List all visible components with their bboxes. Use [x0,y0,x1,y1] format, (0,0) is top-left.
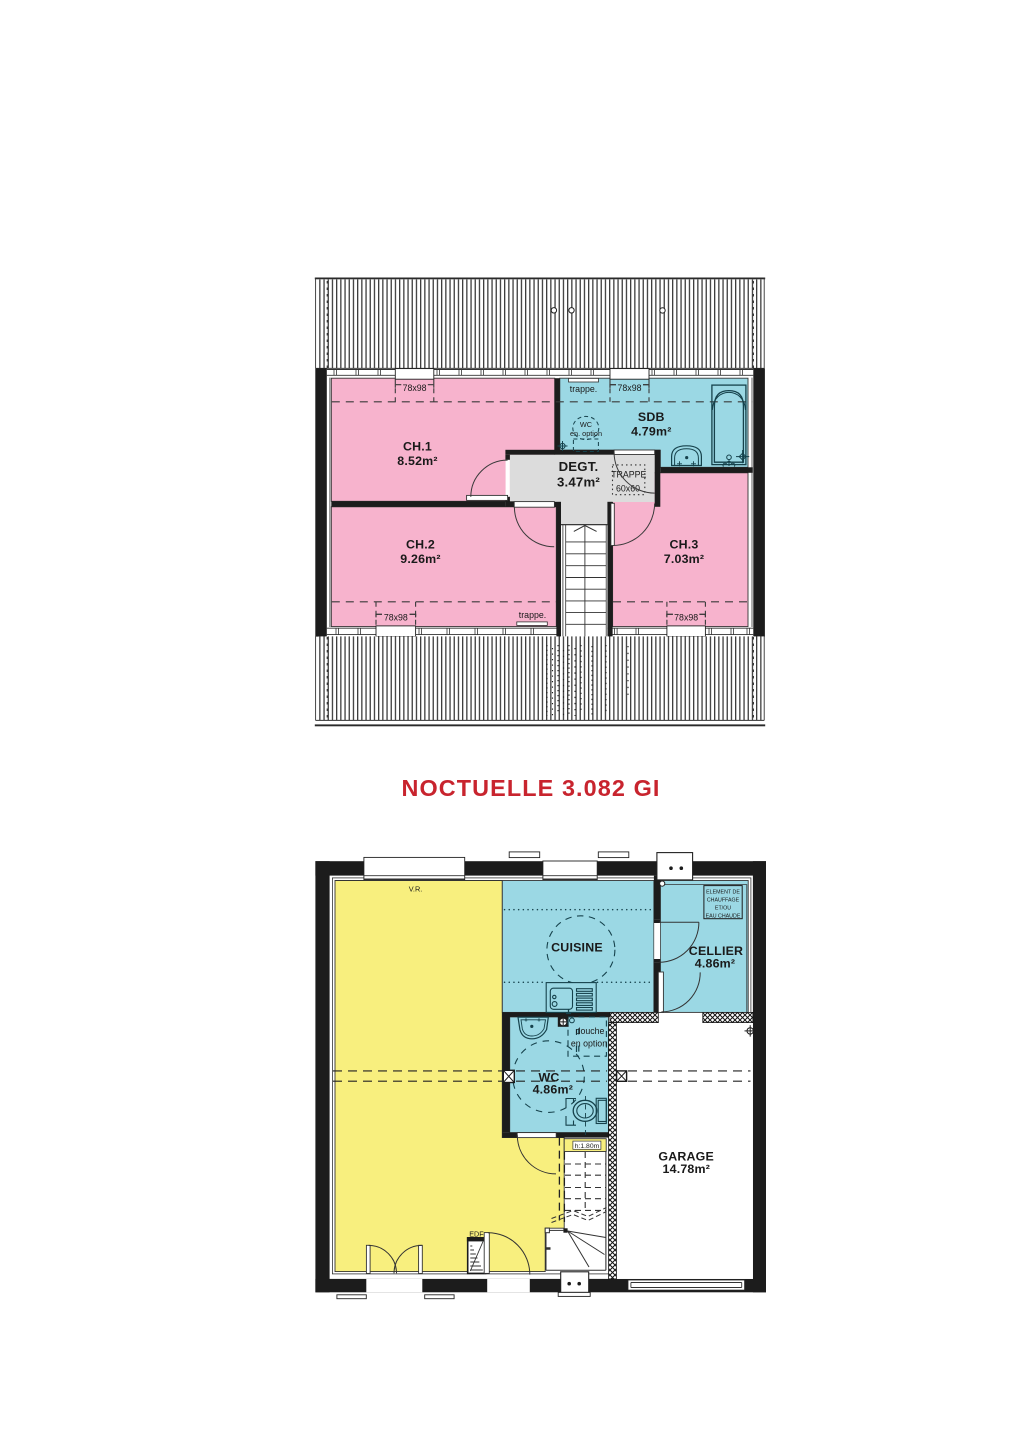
svg-text:CUISINE: CUISINE [551,940,603,954]
svg-text:78x98: 78x98 [618,383,642,393]
svg-text:ET/OU: ET/OU [715,906,731,912]
svg-text:14.78m²: 14.78m² [663,1162,711,1176]
svg-text:CHAUFFAGE: CHAUFFAGE [707,898,740,904]
svg-text:V.R.: V.R. [409,885,423,894]
svg-text:78x98: 78x98 [674,613,698,623]
svg-text:3.47m²: 3.47m² [557,474,600,489]
svg-text:4.79m²: 4.79m² [631,424,671,438]
svg-text:CH.2: CH.2 [406,538,435,552]
svg-text:ELEMENT DE: ELEMENT DE [706,890,740,896]
svg-text:en option: en option [571,1038,607,1048]
svg-text:8.52m²: 8.52m² [397,454,437,468]
svg-text:EAU CHAUDE: EAU CHAUDE [706,914,741,920]
svg-text:trappe.: trappe. [570,384,597,394]
svg-text:NOCTUELLE 3.082 GI: NOCTUELLE 3.082 GI [402,775,661,801]
svg-text:WC: WC [580,420,592,429]
svg-text:9.26m²: 9.26m² [400,552,440,566]
svg-text:7.03m²: 7.03m² [664,552,704,566]
svg-text:en. option: en. option [570,429,602,438]
svg-text:78x98: 78x98 [403,383,427,393]
svg-text:DEGT.: DEGT. [559,459,599,474]
svg-text:CH.1: CH.1 [403,440,432,454]
svg-text:CH.3: CH.3 [669,538,698,552]
svg-text:TRAPPE: TRAPPE [611,470,646,480]
svg-text:78x98: 78x98 [384,613,408,623]
svg-text:4.86m²: 4.86m² [533,1082,573,1096]
svg-text:h:1.80m: h:1.80m [575,1143,600,1150]
svg-text:SDB: SDB [638,410,665,424]
svg-text:EDF: EDF [469,1229,484,1238]
svg-text:douche: douche [576,1026,605,1036]
svg-text:trappe.: trappe. [519,610,546,620]
svg-text:4.86m²: 4.86m² [695,957,735,971]
